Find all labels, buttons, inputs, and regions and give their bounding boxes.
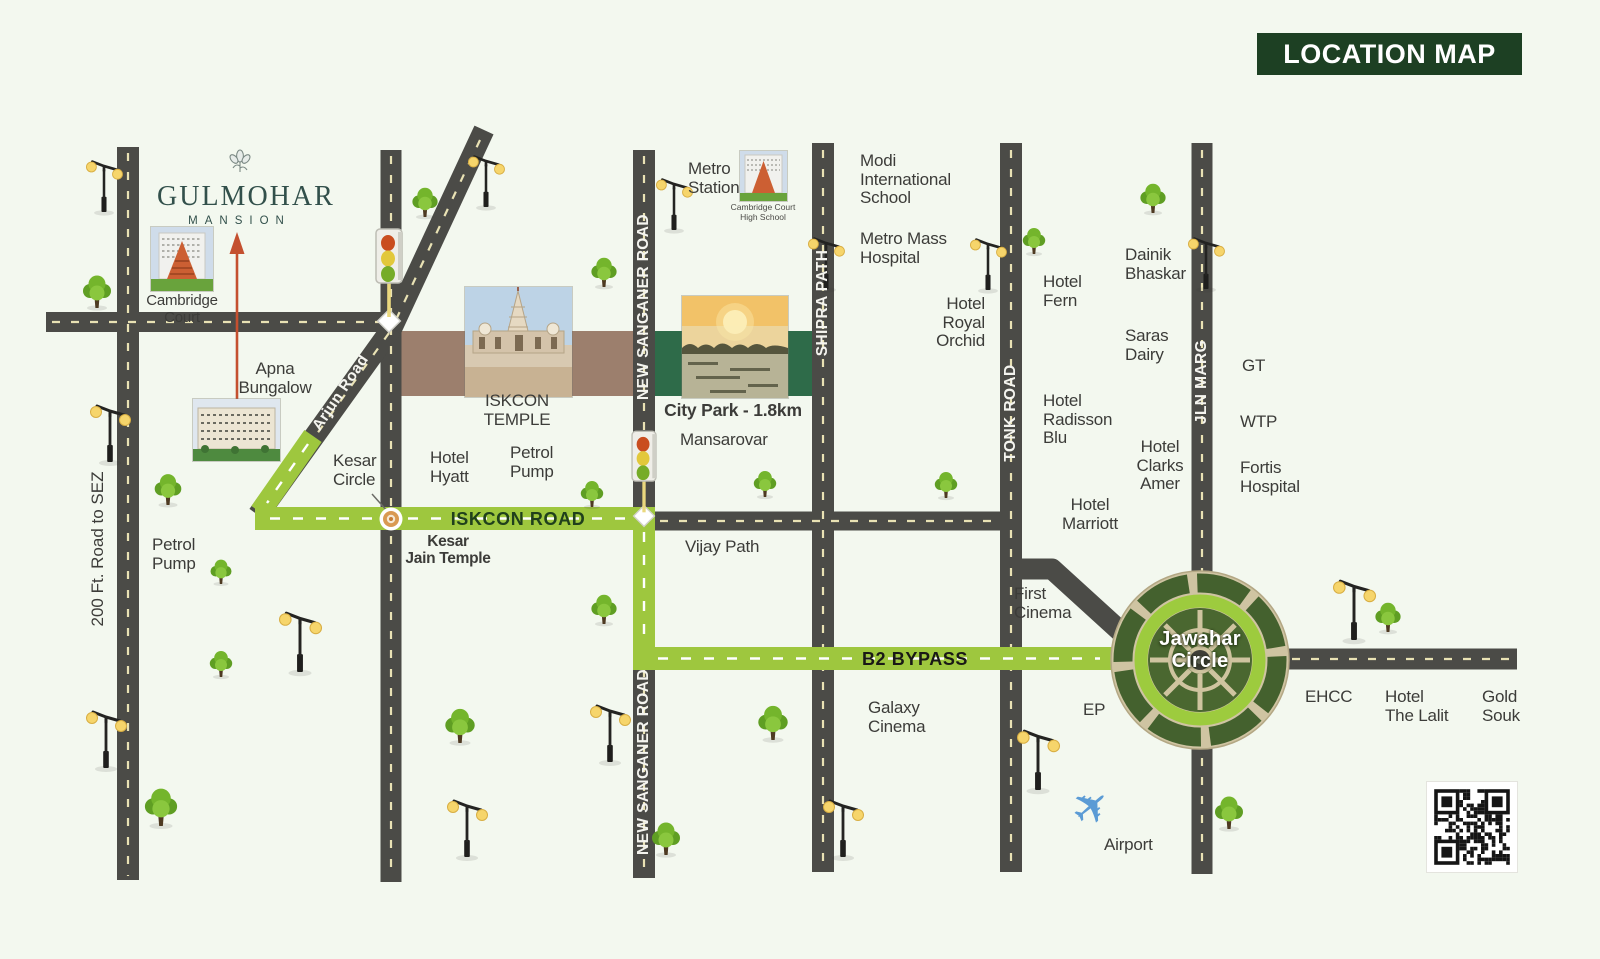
- tree-icon: [652, 823, 680, 858]
- label-hotel-radisson: Hotel Radisson Blu: [1043, 392, 1112, 448]
- road-label-200ft: 200 Ft. Road to SEZ: [86, 449, 108, 649]
- label-modi-school: Modi International School: [860, 152, 951, 208]
- label-hotel-lalit: Hotel The Lalit: [1385, 688, 1448, 725]
- cchs-image: [740, 151, 787, 201]
- street-lamp-icon: [448, 801, 488, 861]
- logo-name: GULMOHAR: [157, 183, 322, 211]
- tree-icon: [145, 789, 177, 829]
- label-hotel-marriott: Hotel Marriott: [1050, 496, 1130, 533]
- tree-icon: [1215, 797, 1243, 832]
- label-airport: Airport: [1104, 836, 1153, 855]
- tree-icon: [1375, 603, 1400, 635]
- cambridge-court-image: [151, 227, 213, 291]
- label-vijay-path: Vijay Path: [685, 538, 759, 557]
- road-label-tonk: TONK ROAD: [1000, 313, 1022, 513]
- label-gt: GT: [1242, 357, 1265, 376]
- label-iskcon-temple: ISKCON TEMPLE: [457, 392, 577, 429]
- label-petrol-pump-mid: Petrol Pump: [510, 444, 554, 481]
- street-lamp-icon: [280, 613, 322, 676]
- label-petrol-pump-left: Petrol Pump: [152, 536, 196, 573]
- label-wtp: WTP: [1240, 413, 1277, 432]
- street-lamp-icon: [468, 157, 504, 211]
- label-hotel-hyatt: Hotel Hyatt: [430, 449, 469, 486]
- iskcon-temple-image: [465, 287, 572, 397]
- tree-icon: [83, 276, 111, 311]
- label-metro-mass-hospital: Metro Mass Hospital: [860, 230, 947, 267]
- label-cambridge-court: Cambridge Court: [142, 293, 222, 326]
- label-city-park: City Park - 1.8km: [663, 401, 803, 420]
- tree-icon: [1023, 228, 1045, 256]
- route-sanganer-link: [633, 507, 655, 670]
- road-label-iskcon: ISKCON ROAD: [438, 510, 598, 528]
- tree-icon: [591, 595, 616, 627]
- tree-icon: [211, 560, 232, 586]
- label-fortis-hospital: Fortis Hospital: [1240, 459, 1300, 496]
- tree-icon: [155, 474, 182, 507]
- road-label-new-sanganer-top: NEW SANGANER ROAD: [633, 207, 655, 407]
- tree-icon: [591, 258, 616, 290]
- location-map: LOCATION MAP GULMOHAR MANSION 200 Ft. Ro…: [0, 0, 1600, 959]
- tree-icon: [581, 481, 603, 509]
- tree-icon: [758, 706, 787, 743]
- gulmohar-mansion-logo: GULMOHAR MANSION: [157, 148, 322, 228]
- label-hotel-royal-orchid: Hotel Royal Orchid: [905, 295, 985, 351]
- street-lamp-icon: [1018, 731, 1060, 794]
- tree-icon: [445, 709, 474, 746]
- road-label-b2-bypass: B2 BYPASS: [835, 650, 995, 668]
- label-ep: EP: [1083, 701, 1105, 720]
- street-lamp-icon: [591, 706, 631, 766]
- flower-icon: [225, 148, 255, 178]
- tree-icon: [210, 651, 232, 679]
- label-galaxy-cinema: Galaxy Cinema: [868, 699, 925, 736]
- label-first-cinema: First Cinema: [1014, 585, 1071, 622]
- apna-bungalow-image: [193, 399, 280, 461]
- location-map-badge: LOCATION MAP: [1257, 33, 1522, 75]
- street-lamp-icon: [1334, 581, 1376, 644]
- city-park-image: [682, 296, 788, 398]
- label-saras-dairy: Saras Dairy: [1125, 327, 1168, 364]
- tree-icon: [935, 472, 957, 500]
- qr-code: [1427, 782, 1517, 872]
- label-gold-souk: Gold Souk: [1482, 688, 1520, 725]
- map-graphics: [0, 0, 1600, 959]
- label-hotel-clarks: Hotel Clarks Amer: [1122, 438, 1198, 494]
- tree-icon: [1140, 184, 1165, 216]
- tree-icon: [754, 471, 776, 499]
- label-metro-station: Metro Station: [688, 160, 740, 197]
- label-kesar-circle: Kesar Circle: [333, 452, 376, 489]
- label-ehcc: EHCC: [1305, 688, 1352, 707]
- label-hotel-fern: Hotel Fern: [1043, 273, 1082, 310]
- label-kesar-jain-temple: Kesar Jain Temple: [398, 533, 498, 567]
- label-jawahar-circle: Jawahar Circle: [1140, 628, 1260, 673]
- road-label-shipra: SHIPRA PATH: [812, 203, 834, 403]
- label-cchs: Cambridge Court High School: [715, 203, 811, 223]
- label-mansarovar: Mansarovar: [680, 431, 768, 450]
- logo-subtitle: MANSION: [157, 216, 322, 228]
- road-label-new-sanganer-bottom: NEW SANGANER ROAD: [633, 662, 655, 862]
- label-apna-bungalow: Apna Bungalow: [230, 360, 320, 397]
- label-dainik-bhaskar: Dainik Bhaskar: [1125, 246, 1186, 283]
